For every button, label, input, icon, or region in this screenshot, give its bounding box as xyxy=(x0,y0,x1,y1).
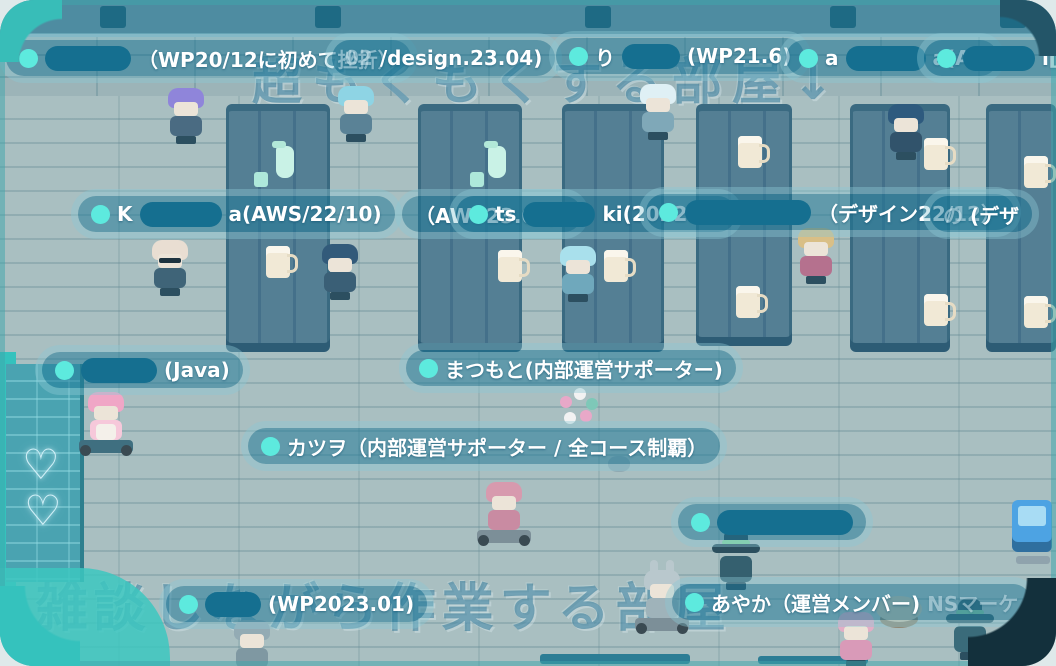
nametag-ayaka: あやか（運営メンバー)NSマーケ xyxy=(672,584,1031,620)
redacted-name xyxy=(717,510,853,535)
presence-dot-icon xyxy=(179,595,198,614)
avatar-face xyxy=(566,260,590,274)
wall-window xyxy=(585,6,611,28)
neon-heart-icon: ♡ xyxy=(22,444,60,486)
avatar-witch[interactable] xyxy=(714,532,758,592)
nametag-text: a(AWS/22/10) xyxy=(229,202,382,226)
avatar-legs xyxy=(960,652,980,660)
avatar-blue-machine[interactable] xyxy=(1010,500,1054,560)
nametag-anon-wp202301: (WP2023.01) xyxy=(166,586,427,622)
avatar-blue-curly[interactable] xyxy=(556,244,600,304)
top-wall xyxy=(0,0,1056,37)
nametag-text: K xyxy=(117,202,133,226)
nametag-text: (WP2023.01) xyxy=(268,592,414,616)
avatar-body xyxy=(324,272,356,292)
avatar-body xyxy=(954,626,986,652)
nametag-anon-only xyxy=(678,504,866,540)
presence-dot-icon xyxy=(55,361,74,380)
cup-prop xyxy=(470,172,484,187)
nametag-text: /design.23.04) xyxy=(380,46,543,70)
bar-prop xyxy=(540,654,690,664)
presence-dot-icon xyxy=(261,437,280,456)
redacted-name xyxy=(963,46,1035,71)
nametag-text: まつもと(内部運営サポーター) xyxy=(445,354,723,383)
avatar-body xyxy=(154,268,186,288)
avatar-face xyxy=(492,496,516,510)
avatar-body xyxy=(642,112,674,132)
avatar-navy-hair[interactable] xyxy=(884,102,928,162)
nametag-text: a xyxy=(825,46,839,70)
mug-prop xyxy=(924,294,948,326)
presence-dot-icon xyxy=(419,359,438,378)
mug-prop xyxy=(266,246,290,278)
presence-dot-icon xyxy=(569,47,588,66)
wall-window xyxy=(830,6,856,28)
avatar-face xyxy=(804,242,828,256)
nametag-text: カツヲ（内部運営サポーター / 全コース制覇） xyxy=(287,432,707,461)
kart-wheel xyxy=(519,535,530,546)
nametag-text: (WP21.6) xyxy=(687,44,791,68)
virtual-space-map: 超もくもくする部屋↓ ←雑談しながら作業する部屋 ♡♡（WP20/12に初めて挫… xyxy=(0,0,1056,666)
presence-dot-icon xyxy=(691,513,710,532)
avatar-legs xyxy=(806,276,826,284)
pitcher-prop xyxy=(488,146,506,178)
avatar-face xyxy=(650,584,674,598)
avatar-face xyxy=(646,98,670,112)
avatar-legs xyxy=(346,134,366,142)
flowers-prop xyxy=(556,386,598,430)
glasses-icon xyxy=(159,258,181,263)
avatar-face xyxy=(844,626,868,640)
avatar-white-beanie[interactable] xyxy=(636,82,680,142)
presence-dot-icon xyxy=(799,49,818,68)
avatar-body xyxy=(340,114,372,134)
cup-prop xyxy=(254,172,268,187)
presence-dot-icon xyxy=(659,203,678,222)
presence-dot-icon xyxy=(685,593,704,612)
avatar-face xyxy=(328,258,352,272)
redacted-name xyxy=(685,200,811,225)
avatar-face xyxy=(894,118,918,132)
mug-prop xyxy=(736,286,760,318)
avatar-face xyxy=(94,406,118,420)
presence-dot-icon xyxy=(19,49,38,68)
presence-dot-icon xyxy=(91,205,110,224)
kart-wheel xyxy=(636,623,647,634)
kart-wheel xyxy=(677,623,688,634)
avatar-gray-bottom[interactable] xyxy=(230,618,274,666)
avatar-blonde-curly[interactable] xyxy=(794,226,838,286)
avatar-legs xyxy=(568,294,588,302)
avatar-body xyxy=(800,256,832,276)
avatar-body xyxy=(236,648,268,666)
redacted-name xyxy=(45,46,131,71)
nametag-text: NSマーケ xyxy=(927,588,1018,617)
mug-prop xyxy=(604,250,628,282)
avatar-aqua-cap[interactable] xyxy=(334,84,378,144)
avatar-pink-dress[interactable] xyxy=(84,390,128,450)
avatar-face xyxy=(344,100,368,114)
neon-heart-icon: ♡ xyxy=(24,490,62,532)
kart-wheel xyxy=(80,445,91,456)
wall-window xyxy=(1000,6,1026,28)
wall-window xyxy=(100,6,126,28)
redacted-name xyxy=(205,592,261,617)
redacted-name xyxy=(622,44,680,69)
nametag-text: i[L xyxy=(1042,46,1056,70)
nametag-anon-ki: i[L xyxy=(924,40,1056,76)
mug-prop xyxy=(1024,156,1048,188)
avatar-purple-hair[interactable] xyxy=(164,86,208,146)
nametag-k-aws: Ka(AWS/22/10) xyxy=(78,196,395,232)
mug-prop xyxy=(738,136,762,168)
avatar-body xyxy=(562,274,594,294)
redacted-name xyxy=(523,202,595,227)
avatar-body xyxy=(170,116,202,136)
redacted-name xyxy=(81,358,157,383)
avatar-face xyxy=(174,102,198,116)
avatar-apron xyxy=(96,424,116,440)
machine-screen xyxy=(1018,506,1046,526)
nametag-text: (Java) xyxy=(164,358,230,382)
mug-prop xyxy=(1024,296,1048,328)
nametag-katsuwo: カツヲ（内部運営サポーター / 全コース制覇） xyxy=(248,428,720,464)
avatar-body xyxy=(890,132,922,152)
presence-dot-icon xyxy=(469,205,488,224)
nametag-text: り xyxy=(595,42,615,71)
nametag-design-2304: 02/design.23.04) xyxy=(332,40,555,76)
mug-prop xyxy=(498,250,522,282)
avatar-pink-kart-rider[interactable] xyxy=(482,480,526,540)
avatar-body xyxy=(840,640,872,660)
avatar-legs xyxy=(160,288,180,296)
avatar-face xyxy=(240,634,264,648)
avatar-legs xyxy=(330,292,350,300)
nametag-text: (デザ xyxy=(970,200,1019,229)
nametag-text: の xyxy=(943,200,963,229)
presence-dot-icon xyxy=(937,49,956,68)
nametag-matsumoto: まつもと(内部運営サポーター) xyxy=(406,350,736,386)
machine-base xyxy=(1016,556,1050,564)
redacted-name xyxy=(140,202,222,227)
kart-wheel xyxy=(478,535,489,546)
avatar-darkblue-hair[interactable] xyxy=(318,242,362,302)
avatar-body xyxy=(488,510,520,530)
avatar-body xyxy=(720,556,752,582)
pitcher-prop xyxy=(276,146,294,178)
nametag-anon-java: (Java) xyxy=(42,352,243,388)
kart-wheel xyxy=(121,445,132,456)
avatar-legs xyxy=(896,152,916,160)
redacted-name xyxy=(846,46,926,71)
avatar-bald-glasses[interactable] xyxy=(148,238,192,298)
avatar-legs xyxy=(176,136,196,144)
nametag-text: 02 xyxy=(345,46,373,70)
nametag-no-design: の(デザ xyxy=(930,196,1032,232)
avatar-legs xyxy=(846,660,866,666)
nametag-text: ts xyxy=(495,202,516,226)
avatar-legs xyxy=(648,132,668,140)
nametag-text: あやか（運営メンバー) xyxy=(711,588,920,617)
nametag-anon-wp216: り(WP21.6) xyxy=(556,38,804,74)
witch-hat-brim xyxy=(712,544,760,553)
wall-window xyxy=(315,6,341,28)
